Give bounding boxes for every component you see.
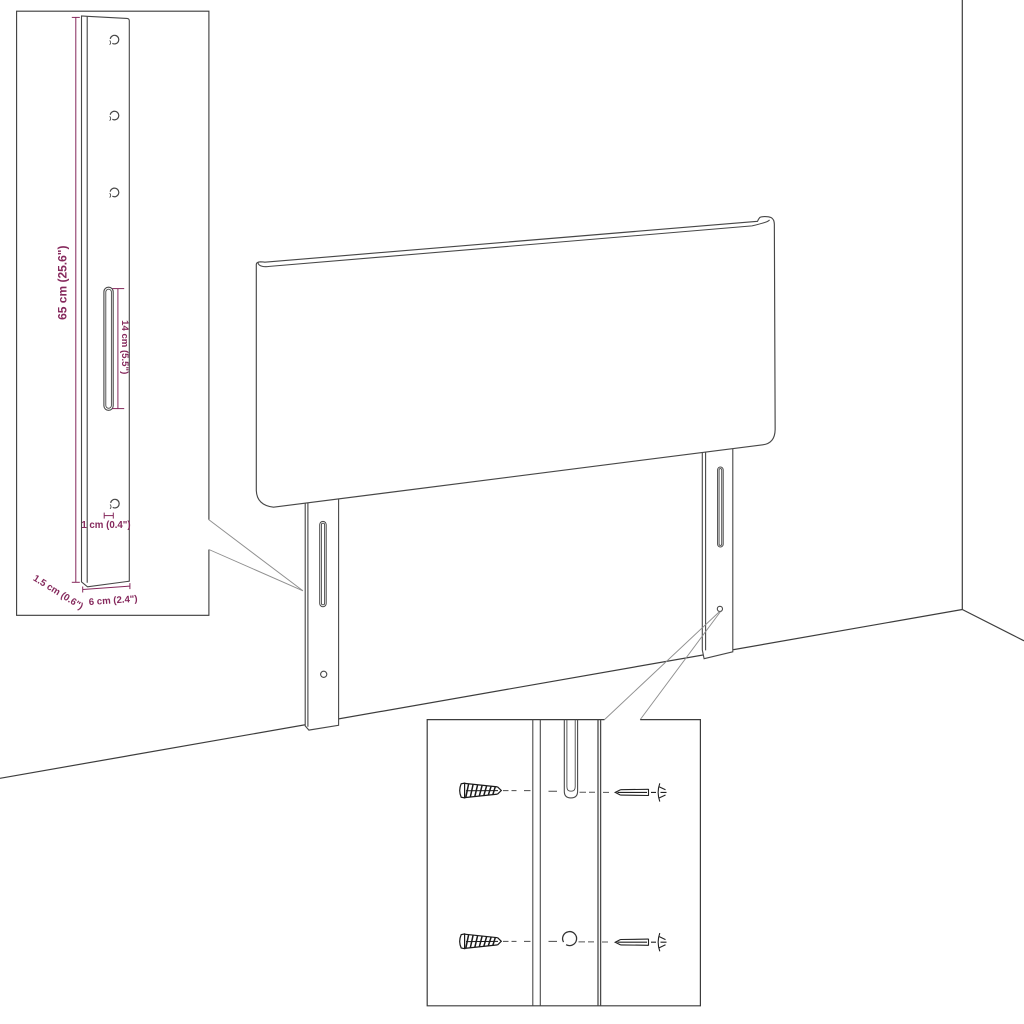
svg-text:14 cm (5.5"): 14 cm (5.5") bbox=[119, 320, 130, 374]
svg-text:1 cm (0.4"): 1 cm (0.4") bbox=[81, 520, 130, 531]
svg-text:65 cm (25.6"): 65 cm (25.6") bbox=[55, 245, 69, 319]
